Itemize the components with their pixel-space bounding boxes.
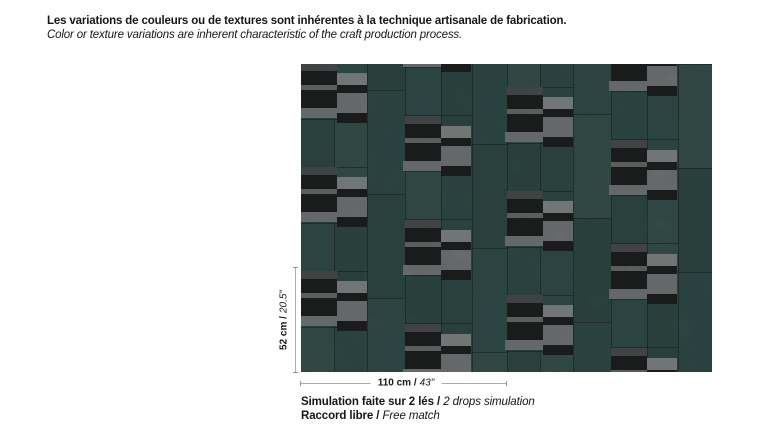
- caption-drops-separator: /: [434, 396, 443, 408]
- height-dimension-inches: 20.5": [279, 290, 290, 313]
- wallpaper-simulation-image: [301, 64, 712, 372]
- caption-line-match: Raccord libre / Free match: [301, 410, 535, 424]
- caption-drops-english: 2 drops simulation: [443, 396, 535, 408]
- width-dimension-cm: 110 cm /: [378, 378, 417, 389]
- variation-notice: Les variations de couleurs ou de texture…: [47, 15, 566, 42]
- height-dimension-tick-bottom: [293, 372, 298, 373]
- notice-line-french: Les variations de couleurs ou de texture…: [47, 15, 566, 29]
- height-dimension-label: 52 cm /20.5": [279, 290, 290, 350]
- height-dimension-tick-top: [293, 267, 298, 268]
- width-dimension-tick-right: [506, 381, 507, 386]
- width-dimension-tick-left: [300, 381, 301, 386]
- caption-match-french: Raccord libre: [301, 410, 373, 422]
- width-dimension-label: 110 cm /43": [371, 378, 442, 389]
- caption-drops-french: Simulation faite sur 2 lés: [301, 396, 434, 408]
- wallcovering-spec-page: Les variations de couleurs ou de texture…: [0, 0, 760, 447]
- caption-line-drops: Simulation faite sur 2 lés / 2 drops sim…: [301, 396, 535, 410]
- height-dimension-line: [295, 267, 296, 373]
- width-dimension-inches: 43": [420, 378, 435, 389]
- height-dimension-cm: 52 cm /: [279, 316, 290, 350]
- simulation-caption: Simulation faite sur 2 lés / 2 drops sim…: [301, 396, 535, 423]
- caption-match-english: Free match: [383, 410, 440, 422]
- notice-line-english: Color or texture variations are inherent…: [47, 29, 566, 43]
- caption-match-separator: /: [373, 410, 382, 422]
